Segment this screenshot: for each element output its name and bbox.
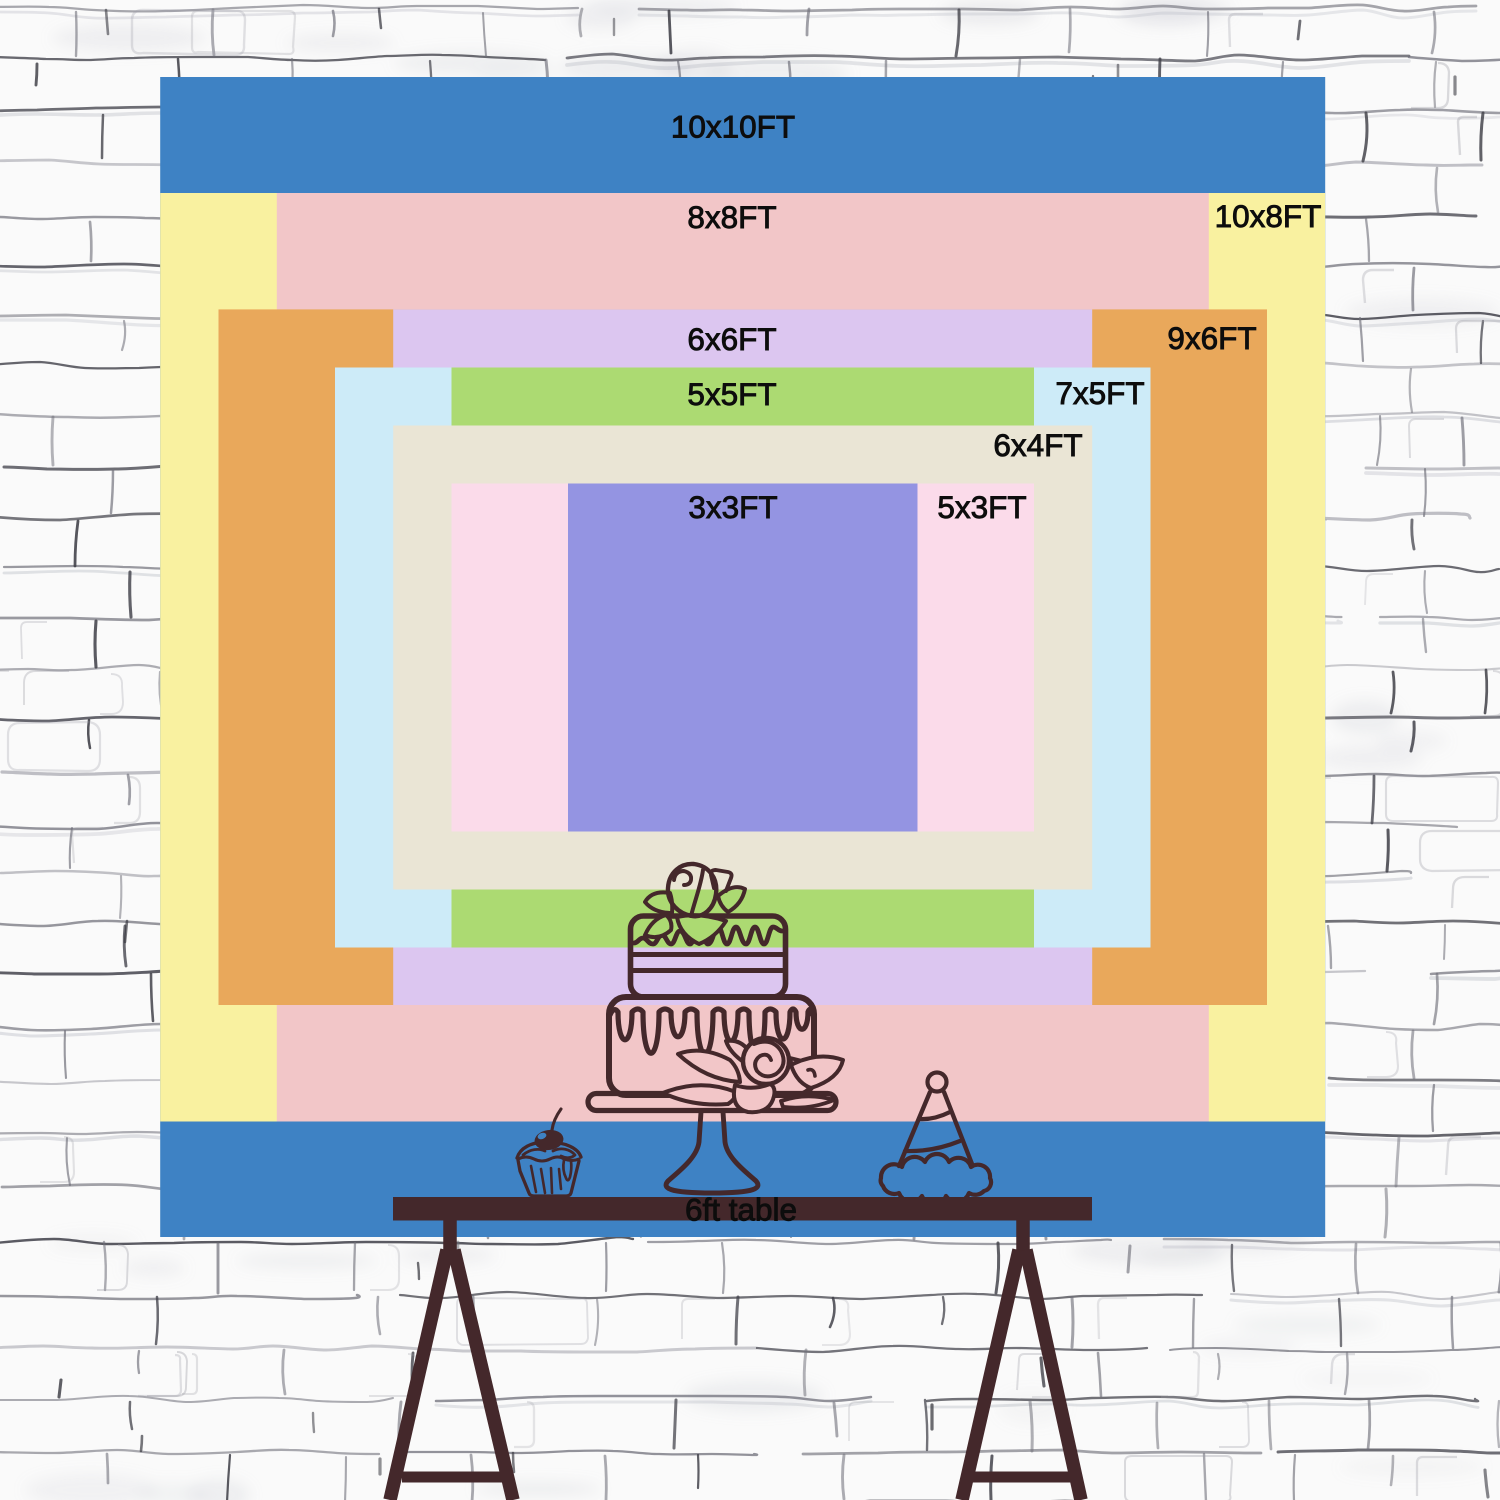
svg-text:6x6FT: 6x6FT [687, 321, 776, 357]
svg-text:10x8FT: 10x8FT [1215, 198, 1322, 234]
svg-text:5x3FT: 5x3FT [937, 489, 1026, 525]
svg-text:6ft table: 6ft table [685, 1192, 797, 1228]
svg-text:6x4FT: 6x4FT [993, 427, 1082, 463]
svg-text:3x3FT: 3x3FT [688, 489, 777, 525]
svg-text:10x10FT: 10x10FT [671, 109, 795, 145]
svg-text:5x5FT: 5x5FT [687, 376, 776, 412]
svg-text:9x6FT: 9x6FT [1167, 320, 1256, 356]
svg-text:8x8FT: 8x8FT [687, 199, 776, 235]
svg-text:7x5FT: 7x5FT [1055, 375, 1144, 411]
